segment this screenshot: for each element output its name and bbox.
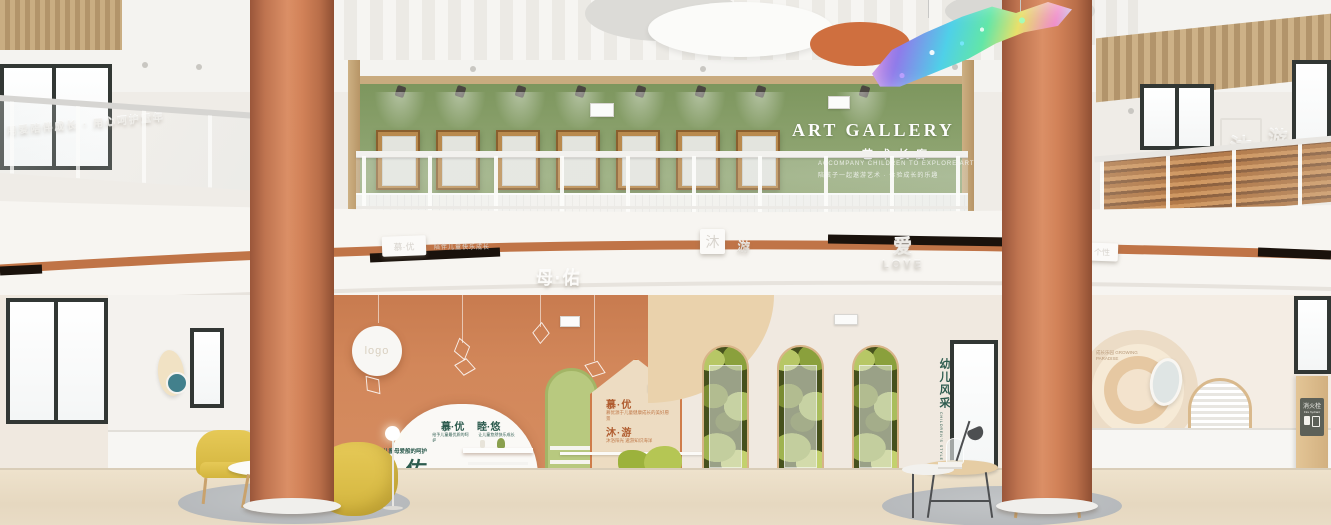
light-cone — [493, 92, 547, 132]
wood-slat-ceiling-left — [0, 0, 122, 50]
light-cone — [733, 92, 787, 132]
fire-hydrant-plate: 消火栓 Fire hydrant — [1300, 398, 1324, 436]
arch-glass-panel — [784, 365, 817, 468]
light-cone — [613, 92, 667, 132]
children-style-en: CHILDREN'S STYLE — [939, 412, 943, 461]
sculpture-wire — [1020, 0, 1021, 12]
fire-extinguisher-icon — [1304, 416, 1310, 425]
console-table-top — [463, 448, 533, 453]
muyou-plaque-label: 慕·优 — [393, 239, 414, 253]
downlight — [142, 62, 148, 68]
light-cone — [433, 92, 487, 132]
wall-vent — [560, 316, 580, 327]
house-caption-2: 沐浴阳光 遨游知识海洋 — [606, 438, 670, 444]
floor-lamp-base — [383, 506, 403, 510]
dome-title-1: 慕·优 — [441, 418, 464, 433]
house-title-1: 慕·优 — [606, 396, 632, 411]
window-mullion — [1175, 84, 1179, 150]
book-stack — [938, 462, 962, 467]
arch-glass-panel — [859, 365, 892, 468]
light-cone — [373, 92, 427, 132]
dome-caption-1: 给予儿童最优质的呵护 — [432, 433, 472, 444]
console-table-shelf — [468, 462, 528, 465]
mu-plaque: 沐 — [700, 229, 725, 254]
house-caption-1: 慕优源于儿童健康成长的美好愿景 — [606, 410, 670, 422]
right-column — [1002, 0, 1092, 508]
arch-shelf-slat — [550, 446, 592, 450]
cloud-cutout-white — [648, 2, 833, 57]
leaf-mural-arch — [702, 345, 749, 478]
floor-lamp-pole — [392, 438, 394, 508]
you-sign: 游 — [736, 236, 751, 256]
window-mullion — [54, 298, 58, 424]
downlight — [470, 66, 476, 72]
mother-bless-sign: 母·佑 — [536, 264, 582, 289]
downlight — [700, 66, 706, 72]
side-table-cross-bar — [930, 500, 990, 502]
teal-badge — [166, 372, 188, 394]
dome-title-2: 睦·悠 — [477, 418, 500, 433]
muyou-plaque: 慕·优 — [382, 235, 427, 257]
arch-glass-panel — [709, 365, 742, 468]
logo-text: logo — [365, 345, 390, 357]
gexing-plaque-label: 个性 — [1094, 246, 1110, 258]
exit-sign — [590, 103, 614, 117]
console-plant — [497, 438, 505, 448]
light-cone — [673, 92, 727, 132]
nesting-table-leg — [912, 470, 914, 518]
fire-hose-icon — [1312, 416, 1320, 427]
mu-plaque-label: 沐 — [706, 232, 720, 252]
arch-shelf-slat — [550, 460, 592, 464]
floor-lamp-globe — [385, 426, 400, 441]
left-column — [250, 0, 334, 508]
lobby-render: 用爱陪伴成长 · 用心呵护童年 ART GALLERY 艺术长廊 ACCOMPA… — [0, 0, 1331, 525]
love-cn-sign: 爱 — [893, 232, 912, 259]
downlight — [196, 64, 202, 70]
wall-vent — [834, 314, 858, 325]
muyou-plaque-caption: 陪伴儿童快乐成长 — [434, 242, 490, 251]
exit-sign — [828, 96, 850, 109]
fire-hydrant-cn: 消火栓 — [1300, 401, 1324, 410]
left-inner-window — [190, 328, 224, 408]
logo-disc: logo — [352, 326, 402, 376]
love-en-sign: LOVE — [882, 259, 924, 271]
leaf-mural-arch — [777, 345, 824, 478]
right-column-base — [996, 498, 1098, 514]
fire-hydrant-en: Fire hydrant — [1300, 410, 1324, 414]
downlight — [1128, 108, 1134, 114]
hanging-string — [378, 295, 379, 323]
house-title-2: 沐·游 — [606, 424, 632, 439]
art-gallery-title: ART GALLERY — [792, 120, 955, 141]
mural-caption: 成长乐园 GROWING PARADISE — [1096, 350, 1150, 361]
dome-caption-2: 让儿童悠然快乐成长 — [478, 432, 518, 437]
hanging-string — [594, 295, 595, 361]
left-column-base — [243, 498, 341, 514]
leaf-mural-arch — [852, 345, 899, 478]
sculpture-wire — [928, 0, 929, 18]
ground-right-window — [1294, 296, 1331, 374]
hanging-string — [462, 295, 463, 343]
console-vase — [480, 440, 485, 448]
